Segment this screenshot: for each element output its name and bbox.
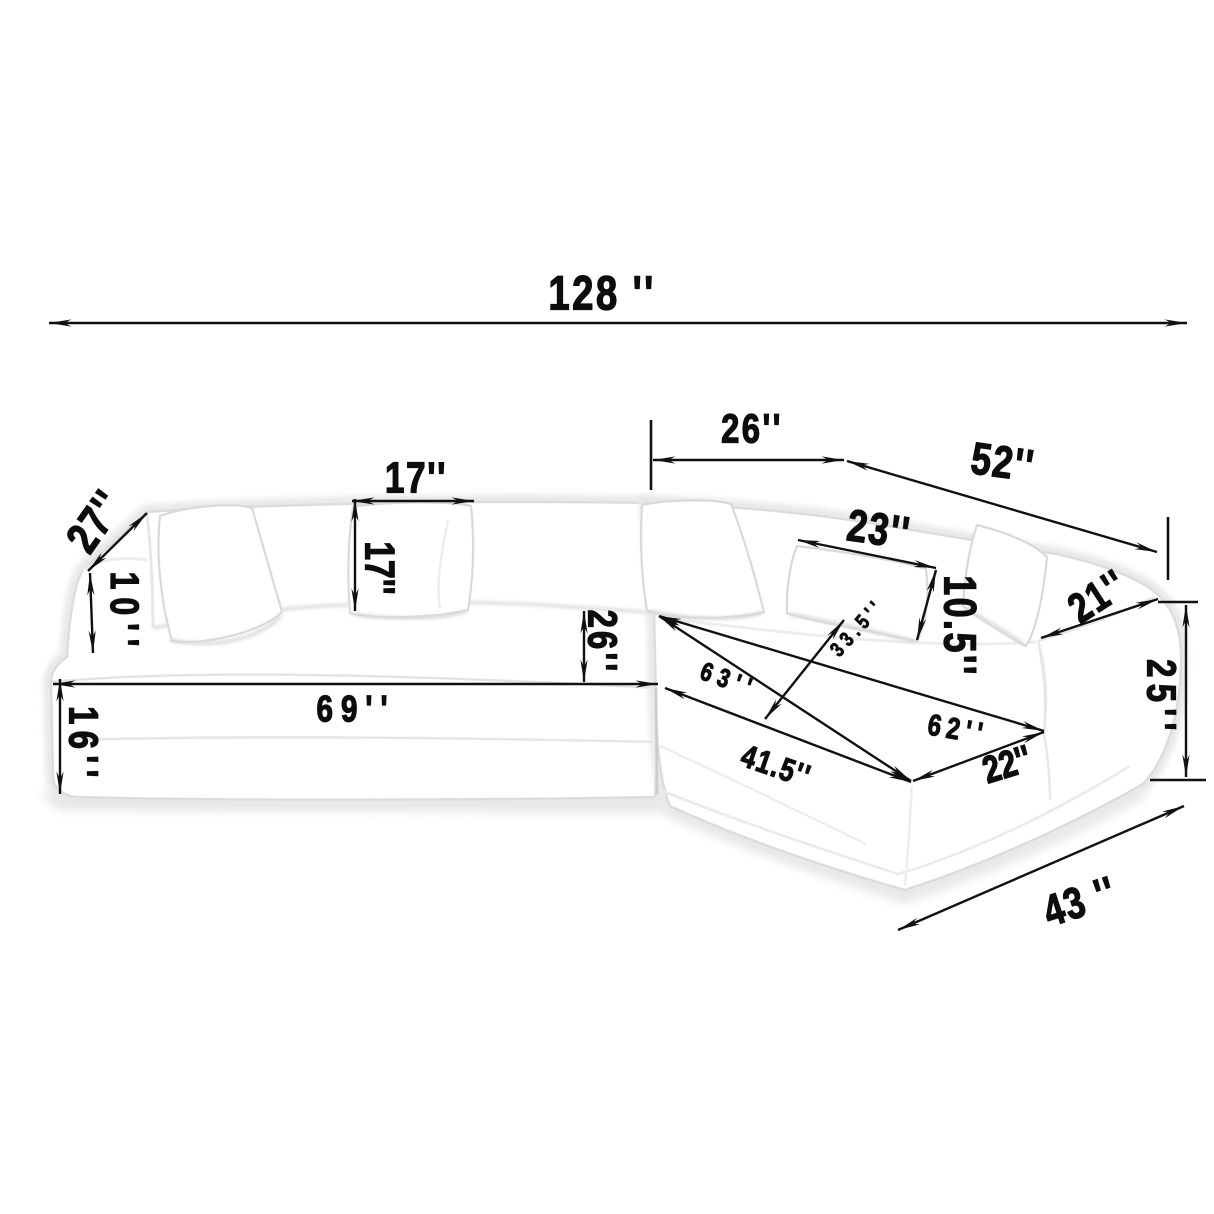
svg-text:17'': 17'' <box>385 454 447 503</box>
svg-text:52'': 52'' <box>968 432 1038 491</box>
svg-text:26'': 26'' <box>580 610 626 675</box>
svg-text:23'': 23'' <box>844 499 914 558</box>
svg-text:10'': 10'' <box>102 572 147 655</box>
svg-text:128 '': 128 '' <box>548 267 655 320</box>
svg-text:10.5'': 10.5'' <box>935 575 986 677</box>
svg-text:26'': 26'' <box>721 405 783 451</box>
svg-text:69'': 69'' <box>317 690 396 731</box>
svg-text:17'': 17'' <box>356 541 402 594</box>
svg-text:25'': 25'' <box>1139 659 1185 737</box>
svg-text:43 '': 43 '' <box>1037 868 1122 937</box>
svg-text:16'': 16'' <box>61 706 107 784</box>
